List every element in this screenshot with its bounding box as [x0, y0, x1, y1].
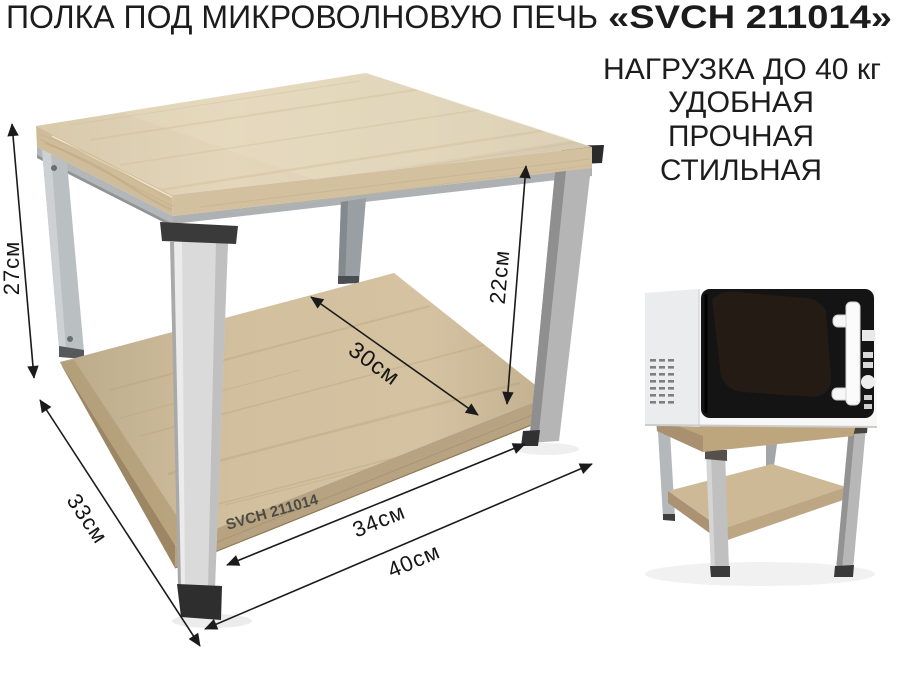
svg-text:22см: 22см — [485, 249, 515, 306]
svg-text:ПРОЧНАЯ: ПРОЧНАЯ — [668, 120, 814, 153]
svg-text:ПОЛКА ПОД МИКРОВОЛНОВУЮ ПЕЧЬ«S: ПОЛКА ПОД МИКРОВОЛНОВУЮ ПЕЧЬ«SVCH 211014… — [6, 0, 892, 35]
svg-text:НАГРУЗКА ДО 40 кг: НАГРУЗКА ДО 40 кг — [603, 53, 881, 86]
svg-text:27см: 27см — [0, 241, 24, 296]
svg-text:СТИЛЬНАЯ: СТИЛЬНАЯ — [660, 154, 822, 187]
svg-text:УДОБНАЯ: УДОБНАЯ — [668, 86, 814, 119]
